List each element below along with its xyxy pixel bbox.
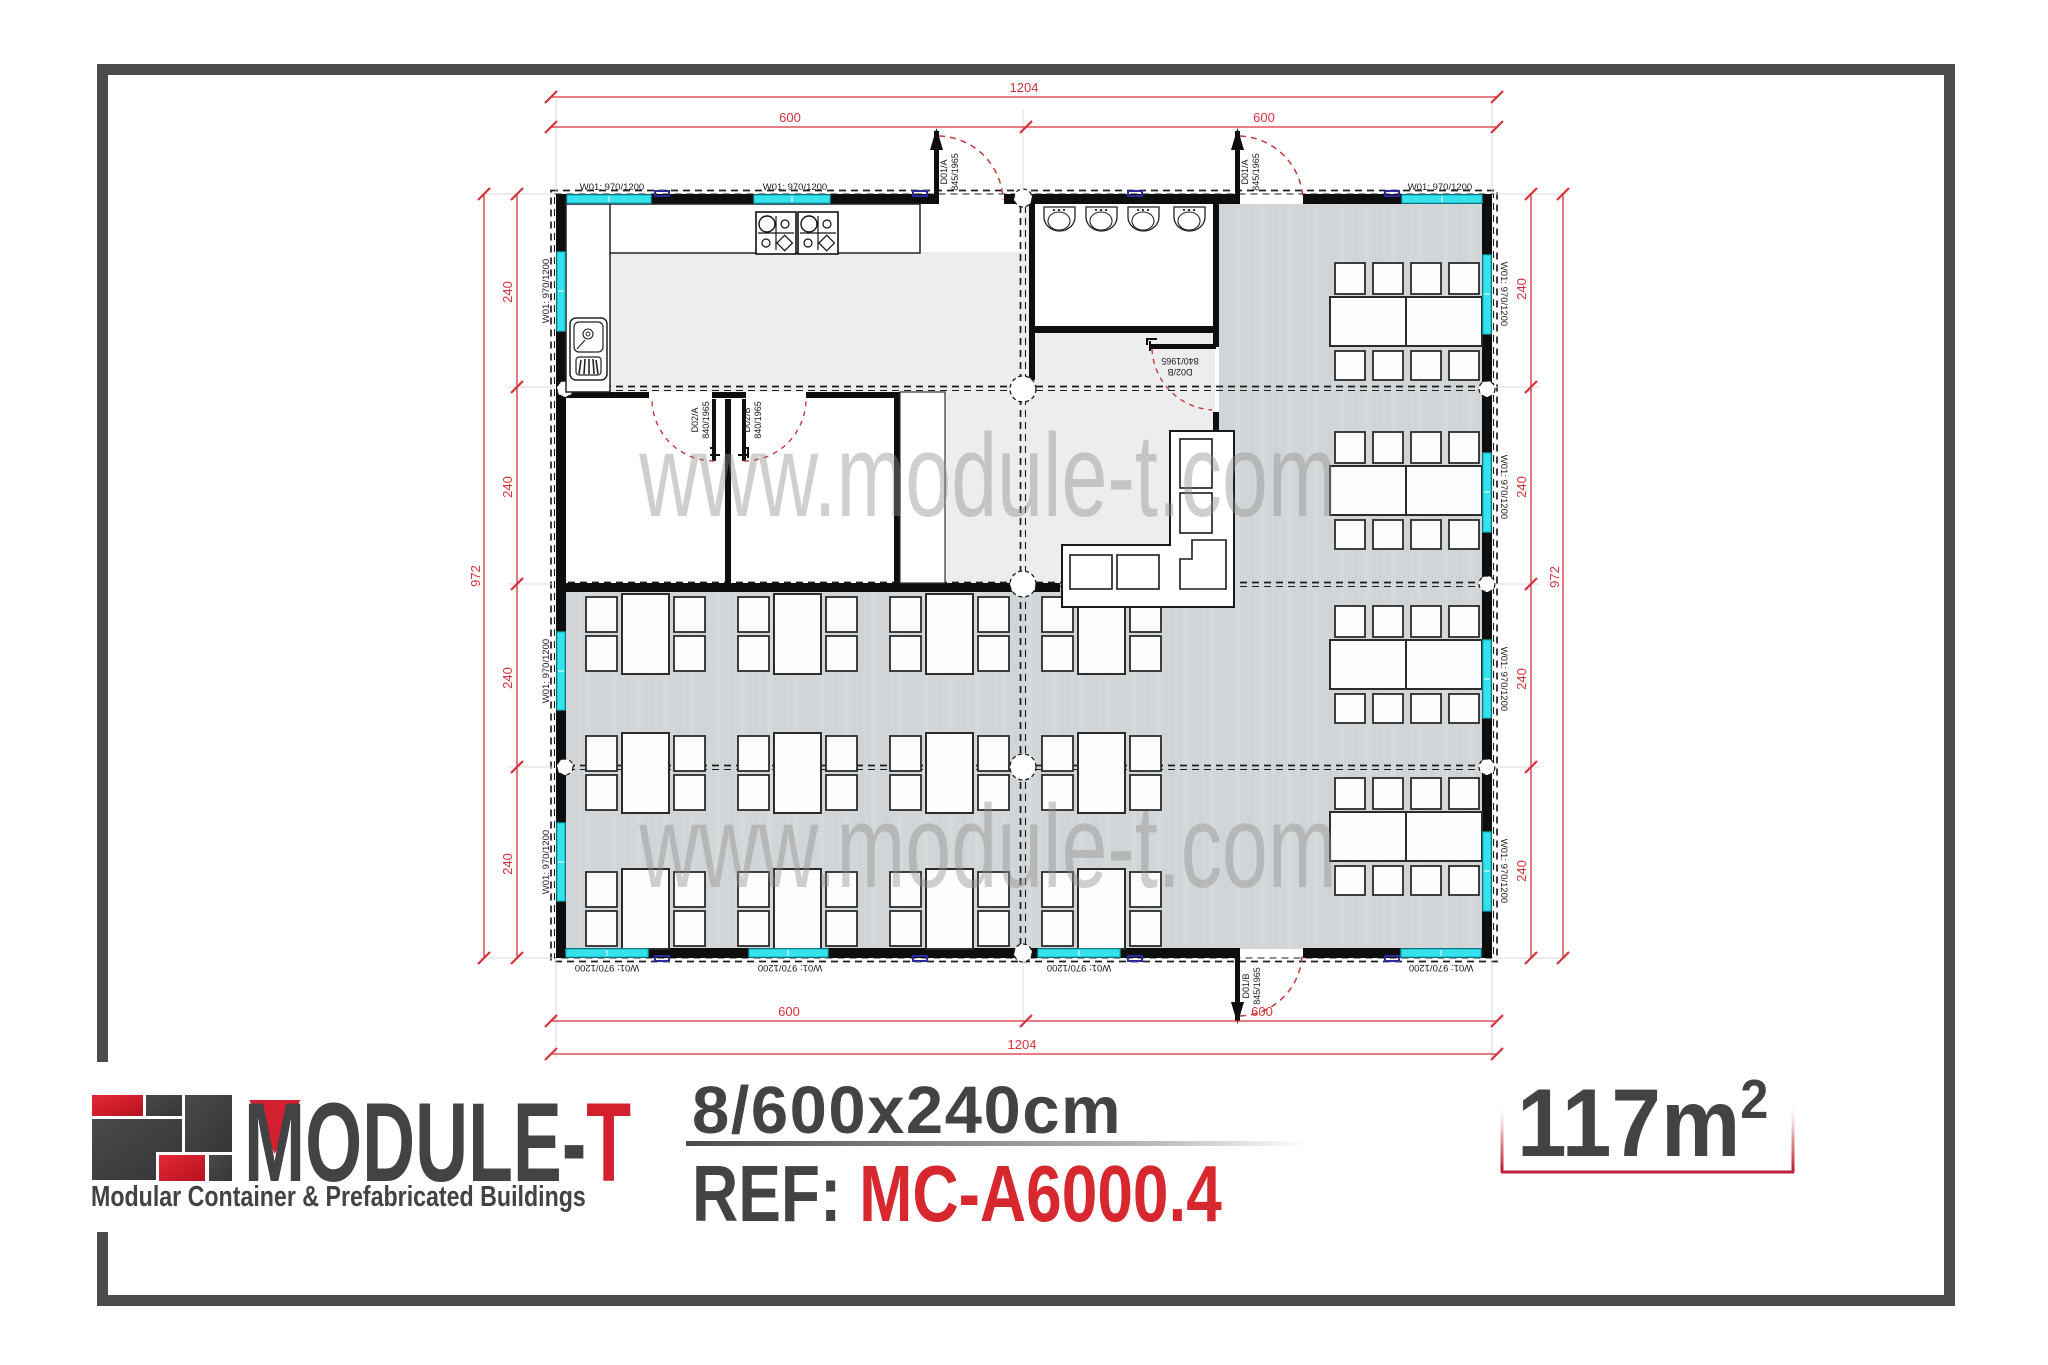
svg-text:W01: 970/1200: W01: 970/1200 xyxy=(763,182,827,193)
svg-text:845/1965: 845/1965 xyxy=(950,153,960,191)
svg-text:117m2: 117m2 xyxy=(1517,1069,1768,1177)
svg-text:845/1965: 845/1965 xyxy=(1252,967,1262,1005)
svg-text:W01: 970/1200: W01: 970/1200 xyxy=(575,962,639,973)
svg-text:www.module-t.com: www.module-t.com xyxy=(638,780,1336,912)
svg-text:D01/B: D01/B xyxy=(1241,973,1251,998)
svg-text:600: 600 xyxy=(779,110,801,125)
svg-text:W01: 970/1200: W01: 970/1200 xyxy=(541,830,552,894)
svg-text:600: 600 xyxy=(1251,1004,1273,1019)
svg-text:W01: 970/1200: W01: 970/1200 xyxy=(580,182,644,193)
svg-text:8/600x240cm: 8/600x240cm xyxy=(692,1073,1122,1148)
svg-text:www.module-t.com: www.module-t.com xyxy=(638,409,1336,541)
svg-text:600: 600 xyxy=(1253,110,1275,125)
svg-text:240: 240 xyxy=(500,853,515,875)
svg-text:W01: 970/1200: W01: 970/1200 xyxy=(1409,962,1473,973)
svg-text:D02/B: D02/B xyxy=(1167,367,1192,377)
svg-text:240: 240 xyxy=(1514,476,1529,498)
svg-text:W01: 970/1200: W01: 970/1200 xyxy=(1047,962,1111,973)
svg-text:1204: 1204 xyxy=(1008,1037,1037,1052)
svg-text:D01/A: D01/A xyxy=(939,159,949,184)
svg-text:240: 240 xyxy=(500,281,515,303)
svg-text:240: 240 xyxy=(1514,668,1529,690)
svg-text:845/1965: 845/1965 xyxy=(1251,153,1261,191)
svg-text:840/1965: 840/1965 xyxy=(1161,356,1199,366)
svg-text:240: 240 xyxy=(1514,278,1529,300)
svg-text:D01/A: D01/A xyxy=(1240,159,1250,184)
svg-text:240: 240 xyxy=(1514,860,1529,882)
svg-text:W01: 970/1200: W01: 970/1200 xyxy=(541,259,552,323)
svg-text:W01: 970/1200: W01: 970/1200 xyxy=(1498,839,1509,903)
svg-text:240: 240 xyxy=(500,476,515,498)
svg-text:Modular Container & Prefabrica: Modular Container & Prefabricated Buildi… xyxy=(91,1179,586,1212)
svg-text:REF: MC-A6000.4: REF: MC-A6000.4 xyxy=(692,1149,1222,1238)
svg-text:972: 972 xyxy=(1547,566,1562,588)
svg-text:W01: 970/1200: W01: 970/1200 xyxy=(758,962,822,973)
svg-text:W01: 970/1200: W01: 970/1200 xyxy=(541,639,552,703)
svg-text:W01: 970/1200: W01: 970/1200 xyxy=(1498,647,1509,711)
svg-text:W01: 970/1200: W01: 970/1200 xyxy=(1498,262,1509,326)
svg-text:W01: 970/1200: W01: 970/1200 xyxy=(1408,182,1472,193)
svg-text:1204: 1204 xyxy=(1010,80,1039,95)
svg-text:600: 600 xyxy=(778,1004,800,1019)
svg-text:240: 240 xyxy=(500,667,515,689)
svg-text:W01: 970/1200: W01: 970/1200 xyxy=(1498,455,1509,519)
svg-text:972: 972 xyxy=(468,565,483,587)
